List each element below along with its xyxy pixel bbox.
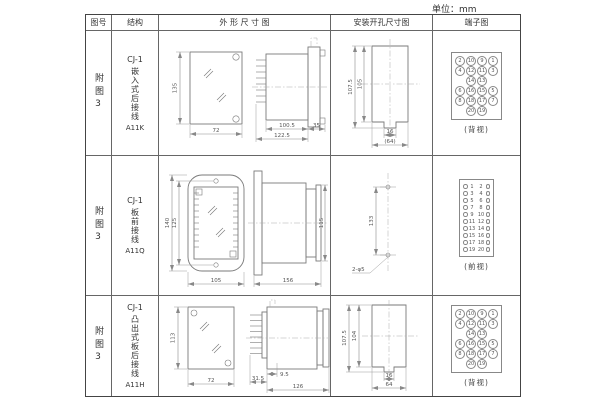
terminal-pin: 8 (455, 96, 465, 106)
dim-front-width: 105 (210, 278, 221, 284)
figure-number: 附图3 (92, 73, 105, 113)
terminal-pin: 2 (455, 56, 465, 66)
terminal-hole (486, 247, 491, 252)
mounting-drawing-a11q: 133 2-φ5 (332, 157, 432, 295)
terminal-number: 18 (477, 240, 486, 246)
spec-table: 图号 结构 外 形 尺 寸 图 安装开孔尺寸图 端子图 附图3 CJ-1 嵌入式… (85, 14, 521, 397)
dim-side-length: 156 (282, 278, 293, 284)
dim-cutout-inner-height: 104 (352, 330, 358, 341)
terminal-pin: 19 (477, 106, 487, 116)
terminal-pin: 16 (466, 86, 476, 96)
terminal-cell: 1234567891011121314151617181920 (前视) (433, 156, 520, 296)
terminal-pin: 15 (477, 86, 487, 96)
terminal-pin: 11 (477, 319, 487, 329)
terminal-pin: 11 (477, 66, 487, 76)
dim-side-height: 115 (319, 217, 325, 228)
dim-cutout-inner-height: 105 (357, 78, 363, 89)
header-figure: 图号 (86, 15, 112, 31)
figure-number: 附图3 (92, 326, 105, 366)
terminal-pin: 12 (466, 319, 476, 329)
terminal-view-label: (背视) (464, 124, 489, 135)
terminal-pin: 15 (477, 339, 487, 349)
side-view: 100.5 35 122.5 (252, 38, 328, 142)
terminal-hole (486, 240, 491, 245)
mount-type-label: 板前接线 (130, 208, 141, 244)
terminal-pin: 16 (466, 339, 476, 349)
terminal-number: 20 (477, 247, 486, 253)
figure-cell: 附图3 (86, 31, 112, 156)
terminal-pin: 7 (488, 349, 498, 359)
model-label: A11K (126, 124, 144, 132)
terminal-number: 6 (477, 198, 486, 204)
header-terminal: 端子图 (433, 15, 520, 31)
terminal-view-label: (背视) (464, 377, 489, 388)
mounting-drawing-a11k: 107.5 105 16 (64) (332, 32, 432, 154)
terminal-pin: 10 (466, 309, 476, 319)
catalog-page: 单位：mm 图号 结构 外 形 尺 寸 图 安装开孔尺寸图 端子图 附图3 CJ… (0, 0, 600, 400)
terminal-hole (486, 219, 491, 224)
dim-cutout-width: (64) (384, 139, 395, 145)
terminal-pin: 6 (455, 339, 465, 349)
dim-slot-width: 16 (386, 129, 393, 135)
terminal-number: 14 (477, 226, 486, 232)
terminal-pin: 5 (488, 86, 498, 96)
side-view: 9.5 31.5 126 (246, 300, 329, 393)
terminal-pin: 1 (488, 56, 498, 66)
terminal-number: 8 (477, 205, 486, 211)
terminal-hole (486, 198, 491, 203)
dim-front-height: 113 (170, 332, 176, 343)
terminal-number: 15 (468, 233, 477, 239)
dim-body-depth: 100.5 (279, 123, 295, 129)
terminal-pin: 18 (466, 349, 476, 359)
outline-cell: 140 125 105 156 (159, 156, 331, 296)
mount-type-label: 凸出式板后接线 (130, 315, 141, 378)
terminal-hole (486, 233, 491, 238)
terminal-grid: 2109141211314136161558181772019 (451, 305, 502, 373)
terminal-number: 11 (468, 219, 477, 225)
terminal-number: 7 (468, 205, 477, 211)
mounting-cell: 107.5 104 16 64 (331, 296, 433, 396)
front-view: 113 72 (170, 307, 234, 387)
terminal-pin: 2 (455, 309, 465, 319)
dim-front-outer-height: 140 (165, 217, 171, 228)
terminal-pin: 14 (466, 76, 476, 86)
model-label: A11Q (125, 247, 144, 255)
terminal-pin: 20 (466, 106, 476, 116)
terminal-pin: 13 (477, 329, 487, 339)
terminal-pin: 7 (488, 96, 498, 106)
terminal-cell: 2109141211314136161558181772019 (背视) (433, 31, 520, 156)
side-view: 156 115 (248, 171, 328, 287)
header-outline: 外 形 尺 寸 图 (159, 15, 331, 31)
terminal-number: 1 (468, 184, 477, 190)
terminal-pin: 4 (455, 66, 465, 76)
dim-front-height: 135 (172, 82, 178, 93)
dim-slot-width: 16 (385, 373, 392, 379)
mounting-cell: 107.5 105 16 (64) (331, 31, 433, 156)
terminal-pin: 6 (455, 86, 465, 96)
dim-cutout-width: 64 (385, 382, 392, 388)
structure-cell: CJ-1 凸出式板后接线 A11H (112, 296, 159, 396)
model-label: A11H (126, 381, 145, 389)
dim-cutout-outer-height: 107.5 (342, 330, 348, 346)
outline-cell: 113 72 9 (159, 296, 331, 396)
terminal-number: 17 (468, 240, 477, 246)
front-view: 140 125 105 (165, 175, 244, 287)
series-label: CJ-1 (127, 55, 143, 64)
mounting-drawing-a11h: 107.5 104 16 64 (332, 297, 432, 395)
terminal-view-label: (前视) (464, 261, 489, 272)
figure-cell: 附图3 (86, 156, 112, 296)
terminal-pin: 1 (488, 309, 498, 319)
series-label: CJ-1 (127, 196, 143, 205)
terminal-number: 12 (477, 219, 486, 225)
outline-drawing-a11h: 113 72 9 (160, 297, 330, 395)
terminal-number: 4 (477, 191, 486, 197)
terminal-pin: 8 (455, 349, 465, 359)
terminal-pin: 20 (466, 359, 476, 369)
terminal-pin: 19 (477, 359, 487, 369)
terminal-strip: 1234567891011121314151617181920 (459, 179, 494, 257)
terminal-hole (486, 205, 491, 210)
figure-number: 附图3 (92, 206, 105, 246)
terminal-pin: 3 (488, 319, 498, 329)
hole-spec-label: 2-φ5 (352, 267, 365, 273)
outline-drawing-a11q: 140 125 105 156 (160, 157, 330, 295)
structure-cell: CJ-1 板前接线 A11Q (112, 156, 159, 296)
terminal-pin: 9 (477, 56, 487, 66)
front-view: 135 72 (172, 52, 242, 138)
dim-body-depth: 126 (292, 384, 303, 390)
terminal-pin: 17 (477, 349, 487, 359)
dim-gap-depth: 9.5 (280, 372, 289, 378)
terminal-pin: 4 (455, 319, 465, 329)
terminal-hole (486, 226, 491, 231)
terminal-pin: 3 (488, 66, 498, 76)
dim-front-width: 72 (207, 378, 214, 384)
mount-type-label: 嵌入式后接线 (130, 67, 141, 121)
dim-flange-depth: 35 (313, 123, 320, 129)
terminal-hole (486, 184, 491, 189)
mounting-cell: 133 2-φ5 (331, 156, 433, 296)
terminal-pin: 14 (466, 329, 476, 339)
outline-cell: 135 72 (159, 31, 331, 156)
terminal-number: 2 (477, 184, 486, 190)
terminal-number: 19 (468, 247, 477, 253)
dim-cutout-outer-height: 107.5 (348, 79, 354, 95)
terminal-pin: 9 (477, 309, 487, 319)
terminal-pin: 18 (466, 96, 476, 106)
terminal-number: 10 (477, 212, 486, 218)
header-structure: 结构 (112, 15, 159, 31)
dim-front-width: 72 (212, 128, 219, 134)
dim-hole-pitch: 133 (369, 215, 375, 226)
terminal-hole (486, 191, 491, 196)
terminal-number: 16 (477, 233, 486, 239)
terminal-hole (486, 212, 491, 217)
terminal-number: 3 (468, 191, 477, 197)
terminal-pin: 12 (466, 66, 476, 76)
terminal-number: 5 (468, 198, 477, 204)
terminal-pin: 13 (477, 76, 487, 86)
dim-pin-depth: 31.5 (251, 376, 264, 382)
terminal-cell: 2109141211314136161558181772019 (背视) (433, 296, 520, 396)
series-label: CJ-1 (127, 303, 143, 312)
terminal-number: 13 (468, 226, 477, 232)
terminal-number: 9 (468, 212, 477, 218)
terminal-pin: 5 (488, 339, 498, 349)
outline-drawing-a11k: 135 72 (160, 32, 330, 154)
terminal-grid: 2109141211314136161558181772019 (451, 52, 502, 120)
dim-front-inner-height: 125 (172, 217, 178, 228)
dim-total-depth: 122.5 (274, 133, 290, 139)
header-mounting: 安装开孔尺寸图 (331, 15, 433, 31)
figure-cell: 附图3 (86, 296, 112, 396)
structure-cell: CJ-1 嵌入式后接线 A11K (112, 31, 159, 156)
terminal-pin: 10 (466, 56, 476, 66)
terminal-pin: 17 (477, 96, 487, 106)
